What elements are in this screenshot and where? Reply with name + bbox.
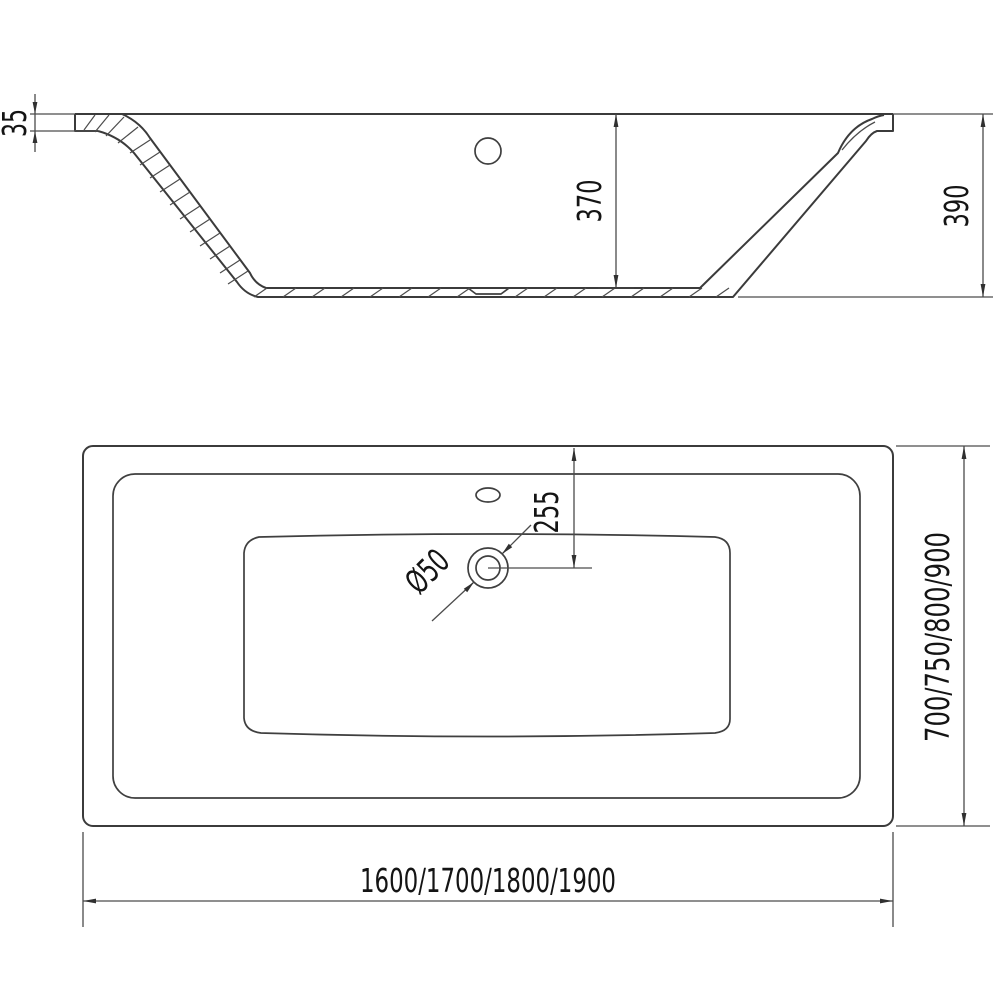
overflow-hole-section-icon (475, 138, 501, 164)
plan-outer-rim (83, 446, 893, 826)
dim-label-rim-thickness: 35 (0, 109, 34, 137)
arrowhead (981, 284, 986, 297)
dim-label-drain-offset: 255 (527, 491, 566, 534)
section-floor-hatching (254, 288, 729, 297)
section-view: 35 370 390 (0, 94, 993, 297)
dim-label-width-options: 700/750/800/900 (918, 532, 957, 742)
dim-inner-depth: 370 (570, 114, 634, 288)
overflow-hole-plan-icon (476, 488, 500, 502)
arrowhead (572, 555, 577, 568)
arrowhead (962, 446, 967, 459)
arrowhead (962, 813, 967, 826)
arrowhead (83, 899, 96, 904)
dim-rim-thickness: 35 (0, 94, 98, 152)
dim-label-drain-diameter: Ø50 (397, 541, 457, 601)
dim-label-overall-height: 390 (937, 185, 976, 228)
section-outer-shell (98, 114, 893, 297)
plan-inner-rim (113, 474, 860, 798)
dim-drain-offset: 255 (527, 448, 576, 568)
dim-length-options: 1600/1700/1800/1900 (83, 832, 893, 927)
plan-floor-outline (244, 534, 730, 737)
plan-view: 255 Ø50 700/750/800/900 1600/1700/18 (83, 446, 990, 927)
arrowhead (572, 448, 577, 461)
arrowhead (880, 899, 893, 904)
arrowhead (614, 114, 619, 127)
arrowhead (614, 275, 619, 288)
arrowhead (981, 114, 986, 127)
dim-width-options: 700/750/800/900 (896, 446, 990, 826)
technical-drawing: 35 370 390 (0, 0, 1000, 1000)
section-wall-hatching (84, 115, 248, 284)
dim-drain-diameter: Ø50 (397, 525, 531, 621)
dim-label-inner-depth: 370 (570, 180, 609, 223)
dim-label-length-options: 1600/1700/1800/1900 (360, 861, 616, 900)
